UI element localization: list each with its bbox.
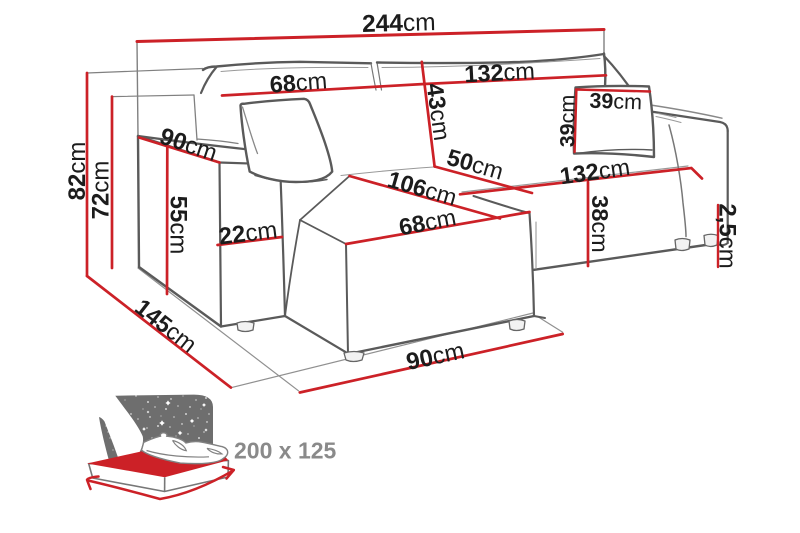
svg-text:68cm: 68cm — [269, 67, 328, 97]
svg-text:200 x 125: 200 x 125 — [234, 438, 337, 464]
svg-text:39cm: 39cm — [589, 89, 642, 115]
svg-text:132cm: 132cm — [464, 58, 536, 88]
svg-text:244cm: 244cm — [362, 9, 436, 38]
svg-text:38cm: 38cm — [587, 195, 613, 252]
svg-text:55cm: 55cm — [165, 196, 192, 255]
svg-text:72cm: 72cm — [88, 161, 115, 220]
svg-text:2,5cm: 2,5cm — [714, 203, 741, 268]
svg-text:39cm: 39cm — [556, 95, 580, 148]
